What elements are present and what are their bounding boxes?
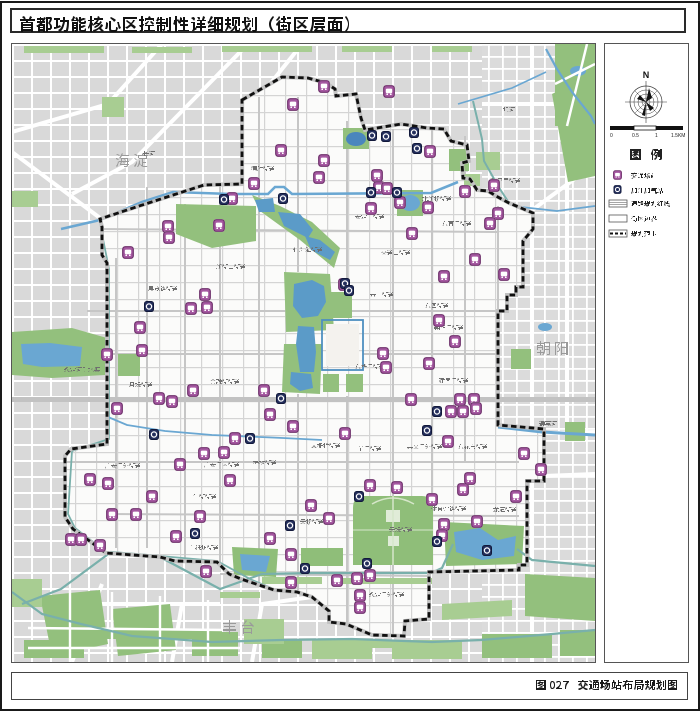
svg-text:0.5: 0.5: [632, 133, 639, 139]
svg-text:N: N: [643, 70, 650, 80]
svg-text:1.5KM: 1.5KM: [671, 133, 685, 139]
svg-text:0: 0: [610, 133, 613, 139]
svg-text:1: 1: [655, 133, 658, 139]
